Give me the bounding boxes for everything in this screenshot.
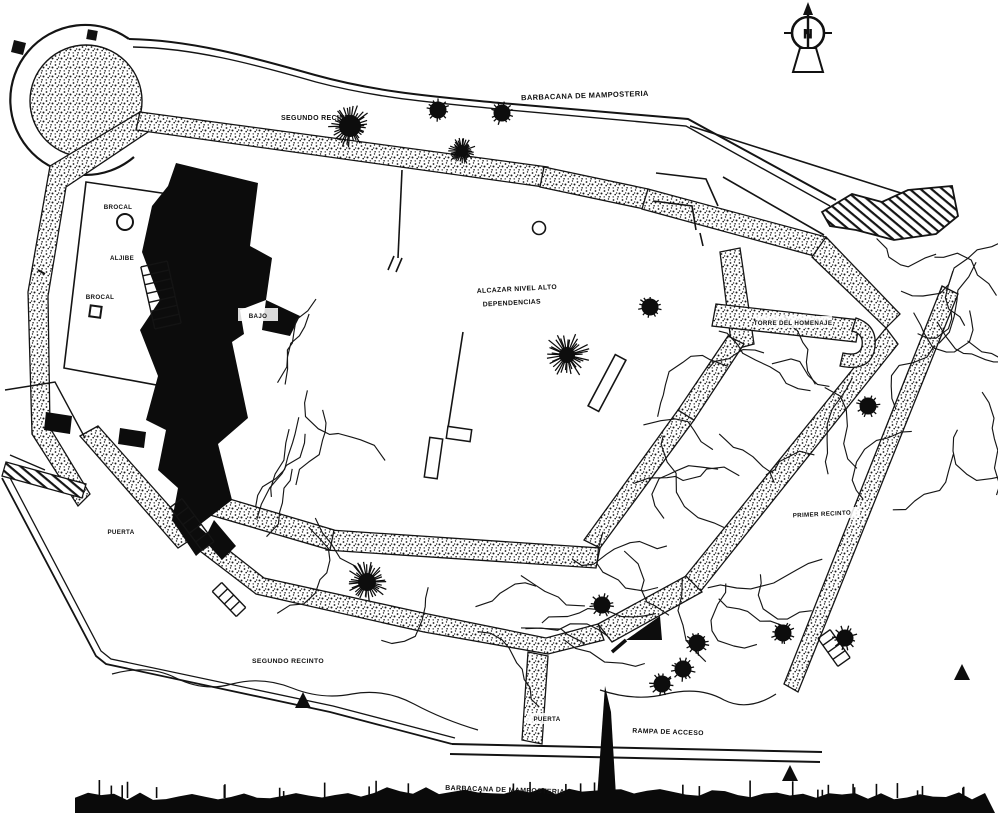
- wall-north-east-ext: [540, 167, 648, 209]
- stairs-rung: [236, 607, 245, 616]
- rock-contour-squiggle: [901, 241, 998, 296]
- stairs-rung: [828, 644, 840, 653]
- courtyard-line-1: [398, 170, 402, 258]
- label-barbacana-top: BARBACANA DE MAMPOSTERIA: [521, 89, 649, 102]
- label-nivel-bajo: BAJO: [249, 313, 268, 320]
- compass-letter: N: [803, 27, 812, 41]
- starburst-core: [559, 347, 575, 363]
- label-alcazar-line1: ALCAZAR NIVEL ALTO: [477, 284, 558, 295]
- wall-puerta-south: [522, 652, 548, 744]
- torre-wall-vertical: [720, 248, 754, 350]
- tree-canopy: [654, 676, 671, 693]
- tree-dot: [771, 623, 794, 644]
- stairs-rung: [224, 595, 233, 604]
- rock-contour-squiggle: [719, 599, 782, 626]
- rock-contour-squiggle: [597, 532, 658, 591]
- flag-marker-tail: [612, 640, 626, 652]
- plan-canvas: N BARBACANA DE MAMPOSTERIA SEGUNDO RECIN…: [0, 0, 998, 815]
- stairs-rung: [838, 658, 850, 667]
- well-circle-courtyard: [533, 222, 546, 235]
- label-brocal-lower: BROCAL: [86, 294, 115, 301]
- label-aljibe: ALJIBE: [110, 255, 134, 262]
- rock-contour-squiggle: [877, 239, 937, 267]
- survey-markers: [295, 616, 970, 781]
- rock-outcrop-hatch: [822, 186, 958, 240]
- tree-canopy: [837, 630, 854, 647]
- bottom-treeline-silhouette: [75, 780, 995, 813]
- meander-second-recinto: [112, 670, 478, 730]
- tree-canopy: [642, 299, 659, 316]
- tree-dot: [638, 297, 661, 318]
- tree-dot: [491, 102, 512, 125]
- bench-rect: [588, 355, 626, 412]
- south-gate-dark-spike: [596, 686, 617, 813]
- tower-merlon-block: [86, 29, 98, 41]
- label-torre-homenaje: TORRE DEL HOMENAJE: [754, 320, 833, 327]
- stairs-rung: [212, 582, 221, 591]
- tree-canopy: [689, 635, 706, 652]
- label-puerta-south: PUERTA: [533, 716, 560, 723]
- tree-starburst: [349, 562, 386, 601]
- rock-contour-squiggle: [652, 466, 718, 519]
- dark-patch-b: [118, 428, 146, 448]
- label-segundo-recinto-top: SEGUNDO RECINTO: [281, 115, 355, 122]
- castle-plan-drawing: N BARBACANA DE MAMPOSTERIA SEGUNDO RECIN…: [0, 0, 998, 815]
- label-alcazar-line2: DEPENDENCIAS: [483, 298, 542, 308]
- label-brocal-upper: BROCAL: [104, 204, 133, 211]
- label-segundo-recinto-bottom: SEGUNDO RECINTO: [252, 658, 324, 665]
- triangle-marker: [295, 692, 311, 708]
- rock-contour-squiggle: [953, 430, 998, 481]
- rock-contour-squiggle: [937, 322, 998, 374]
- stairs-rung: [823, 637, 835, 646]
- ramp-line-upper: [452, 744, 822, 752]
- stairs-rung: [833, 651, 845, 660]
- rock-contour-squiggle: [772, 359, 830, 387]
- ruin-rect-a: [446, 426, 471, 441]
- meander-south-gate: [600, 690, 776, 705]
- rock-contour-squiggle: [893, 454, 954, 510]
- compass-arrowhead: [803, 2, 813, 15]
- tree-starburst: [547, 334, 589, 375]
- stairs: [212, 582, 245, 616]
- rock-contour-squiggle: [305, 390, 386, 460]
- tree-canopy: [594, 597, 611, 614]
- tree-canopy: [675, 661, 692, 678]
- tree-dot: [649, 674, 673, 696]
- ramp-line-lower: [450, 754, 820, 762]
- wall-northeast: [642, 189, 826, 257]
- wall-diag-to-torre: [678, 336, 744, 420]
- tree-canopy: [430, 102, 447, 119]
- tree-canopy: [775, 625, 792, 642]
- terrain-meanders: [112, 670, 776, 730]
- tree-dot: [671, 658, 695, 682]
- brocal-lower-square: [89, 305, 101, 317]
- tree-canopy: [860, 398, 877, 415]
- rock-contour-squiggle: [711, 584, 757, 649]
- label-backdrops: [238, 308, 860, 724]
- rock-contour-squiggle: [476, 583, 537, 607]
- label-rampa-acceso: RAMPA DE ACCESO: [632, 728, 704, 737]
- courtyard-line-2: [448, 332, 463, 428]
- triangle-marker: [782, 765, 798, 781]
- ruin-rect-b: [424, 437, 442, 478]
- tree-dot: [686, 633, 710, 656]
- north-compass: N: [784, 2, 832, 72]
- triangle-marker: [954, 664, 970, 680]
- tree-dot: [589, 593, 613, 616]
- stairs-rung: [230, 601, 239, 610]
- compass-pedestal: [793, 48, 823, 72]
- courtyard-slashes: [388, 256, 402, 272]
- starburst-core: [456, 145, 468, 157]
- brocal-well-circle: [117, 214, 133, 230]
- corner-block: [11, 40, 26, 55]
- rock-contour-squiggle: [521, 576, 585, 606]
- tree-dot: [832, 626, 857, 651]
- stairs-rung: [218, 589, 227, 598]
- rock-contour-squiggle: [758, 574, 812, 619]
- label-puerta-west: PUERTA: [107, 529, 134, 536]
- tree-canopy: [494, 105, 511, 122]
- tree-dot: [856, 396, 880, 417]
- starburst-core: [358, 573, 376, 591]
- rock-contour-squiggle: [708, 559, 823, 589]
- wall-south-diagonal: [584, 410, 694, 548]
- wall-south: [326, 530, 600, 568]
